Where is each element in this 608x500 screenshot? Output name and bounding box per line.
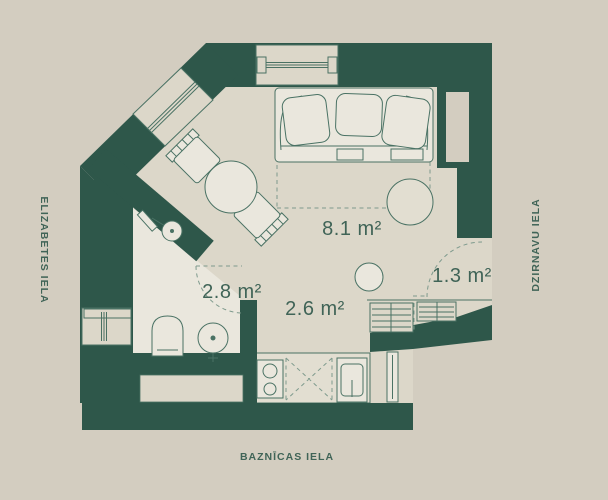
street-label-south: BAZNĪCAS IELA xyxy=(240,451,334,463)
room-area-label-bathroom: 2.8 m² xyxy=(202,281,262,303)
wall-north xyxy=(206,43,492,87)
wall-niche-east xyxy=(446,92,469,162)
sofa xyxy=(275,88,433,162)
wall-niche-south xyxy=(140,375,243,402)
stove xyxy=(257,360,283,398)
pouf xyxy=(387,179,433,225)
window-north xyxy=(256,45,338,85)
dining-table xyxy=(205,161,257,213)
street-label-west: ELIZABETES IELA xyxy=(38,196,50,303)
entry-door xyxy=(387,352,398,402)
wall-south xyxy=(82,403,413,430)
kitchen-sink xyxy=(337,358,367,402)
floor-plan: 8.1 m² 2.8 m² 2.6 m² 1.3 m² ELIZABETES I… xyxy=(0,0,608,500)
street-label-east: DZIRNAVU IELA xyxy=(530,198,542,291)
stool xyxy=(355,263,383,291)
window-west xyxy=(82,308,131,345)
room-area-label-living: 8.1 m² xyxy=(322,218,382,240)
room-area-label-hallway: 2.6 m² xyxy=(285,298,345,320)
wall-west xyxy=(80,180,133,403)
toilet xyxy=(152,316,183,356)
room-area-label-balcony: 1.3 m² xyxy=(432,265,492,287)
